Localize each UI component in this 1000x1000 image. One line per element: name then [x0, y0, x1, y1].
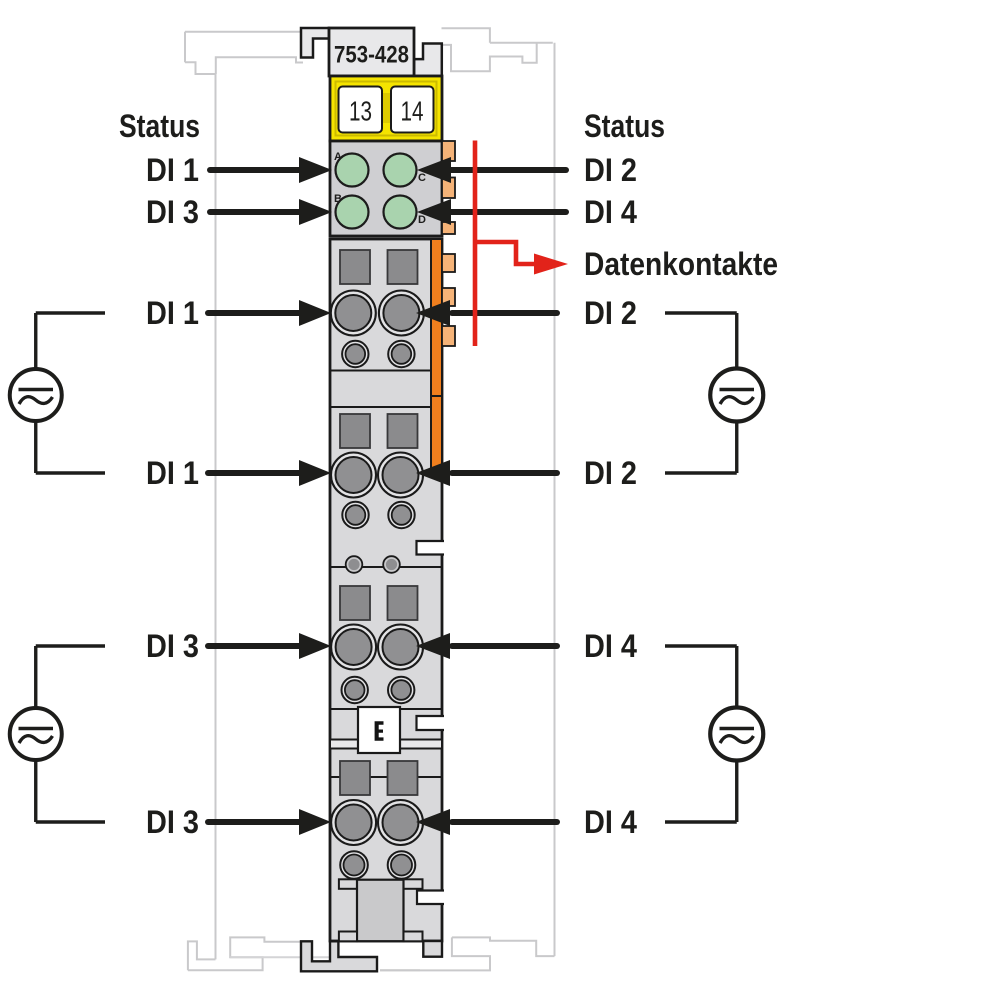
svg-text:DI 2: DI 2 [584, 295, 637, 331]
svg-text:D: D [418, 214, 426, 226]
svg-text:DI 2: DI 2 [584, 455, 637, 491]
svg-text:13: 13 [349, 96, 372, 127]
svg-text:DI 1: DI 1 [146, 455, 199, 491]
svg-text:Datenkontakte: Datenkontakte [584, 246, 778, 282]
svg-text:Status: Status [584, 108, 665, 144]
svg-text:DI 3: DI 3 [146, 804, 199, 840]
svg-text:DI 4: DI 4 [584, 804, 637, 840]
svg-text:DI 3: DI 3 [146, 628, 199, 664]
svg-text:753-428: 753-428 [334, 42, 409, 69]
svg-text:Status: Status [119, 108, 200, 144]
svg-text:DI 2: DI 2 [584, 152, 637, 188]
svg-text:C: C [418, 172, 426, 184]
svg-text:DI 3: DI 3 [146, 194, 199, 230]
svg-text:DI 1: DI 1 [146, 295, 199, 331]
svg-text:14: 14 [401, 96, 424, 127]
svg-text:DI 1: DI 1 [146, 152, 199, 188]
svg-text:DI 4: DI 4 [584, 194, 637, 230]
svg-text:DI 4: DI 4 [584, 628, 637, 664]
